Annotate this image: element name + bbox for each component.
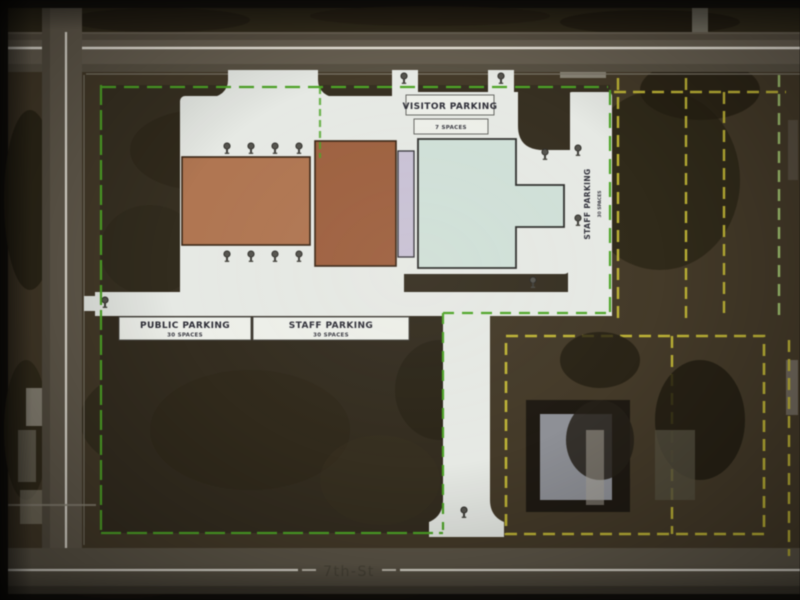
street-label-7th-st: 7th-St <box>323 564 375 580</box>
bottom-street-7th: 7th-St <box>8 548 800 594</box>
building-connector <box>398 151 414 257</box>
visitor-spaces-label: 7 SPACES <box>435 125 467 131</box>
pavement-south-strip <box>95 292 612 316</box>
staff-parking-side-spaces: 30 SPACES <box>597 190 603 217</box>
staff-parking-side-label: STAFF PARKING <box>583 168 592 239</box>
building-center-block <box>315 141 396 266</box>
pavement-west-stub <box>84 296 96 311</box>
public-parking-spaces: 30 SPACES <box>167 333 203 339</box>
site-plan-map: 7th-St <box>0 0 800 600</box>
top-street <box>8 32 800 74</box>
projected-site-plan-photo: 7th-St <box>0 0 800 600</box>
staff-parking-label: STAFF PARKING <box>289 321 373 331</box>
visitor-parking-label: VISITOR PARKING <box>403 102 498 112</box>
staff-parking-spaces: 30 SPACES <box>313 333 349 339</box>
building-west-block <box>182 157 310 245</box>
ground-notch-ne <box>518 92 570 150</box>
public-parking-label: PUBLIC PARKING <box>140 321 230 331</box>
